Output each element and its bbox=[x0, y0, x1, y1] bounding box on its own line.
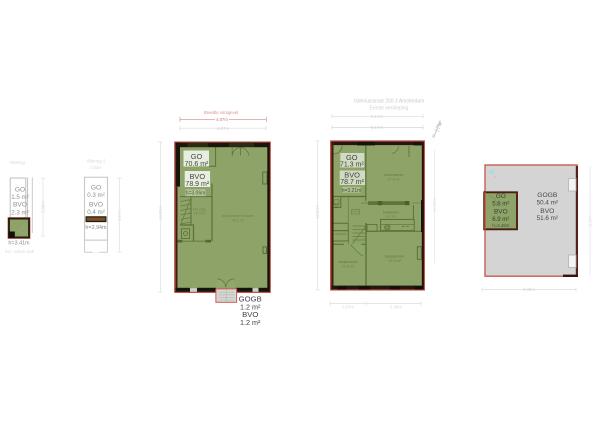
svg-text:incl. schuin dak: incl. schuin dak bbox=[5, 249, 35, 254]
svg-text:BVO: BVO bbox=[344, 170, 360, 179]
svg-text:Breedte voorgevel: Breedte voorgevel bbox=[204, 110, 238, 115]
svg-text:woonkamer keuken: woonkamer keuken bbox=[222, 214, 254, 218]
svg-text:Vliering: Vliering bbox=[9, 160, 25, 165]
svg-text:4.2 m²: 4.2 m² bbox=[386, 215, 397, 219]
svg-text:h=3.41m: h=3.41m bbox=[8, 241, 30, 247]
svg-text:5.45m: 5.45m bbox=[390, 304, 402, 309]
svg-text:h=2.94m: h=2.94m bbox=[85, 225, 107, 231]
svg-text:5.17m: 5.17m bbox=[371, 114, 384, 119]
svg-text:h=3.21m: h=3.21m bbox=[342, 188, 362, 194]
svg-text:3.67m: 3.67m bbox=[117, 209, 122, 221]
svg-text:5.8 m²: 5.8 m² bbox=[492, 202, 509, 208]
svg-text:slaapkamer: slaapkamer bbox=[338, 260, 358, 264]
svg-text:0.3 m²: 0.3 m² bbox=[87, 192, 105, 199]
svg-text:woonkamer: woonkamer bbox=[384, 173, 404, 177]
svg-text:2.96m: 2.96m bbox=[41, 201, 46, 213]
svg-text:h=3.06m: h=3.06m bbox=[186, 191, 206, 197]
svg-text:GO: GO bbox=[191, 152, 203, 161]
svg-text:BVO: BVO bbox=[494, 209, 508, 216]
svg-text:48.1 m²: 48.1 m² bbox=[232, 219, 245, 223]
svg-text:BVO: BVO bbox=[189, 172, 205, 181]
svg-text:GO: GO bbox=[15, 186, 25, 193]
svg-text:9.35m: 9.35m bbox=[523, 287, 536, 292]
svg-text:GOGB: GOGB bbox=[537, 192, 558, 199]
svg-text:slaapkamer: slaapkamer bbox=[385, 255, 405, 259]
svg-text:GO: GO bbox=[346, 153, 358, 162]
svg-text:18.7cm: 18.7cm bbox=[194, 212, 206, 216]
svg-text:11.2m: 11.2m bbox=[588, 216, 593, 228]
svg-text:GO: GO bbox=[496, 193, 506, 200]
svg-text:70.6 m²: 70.6 m² bbox=[185, 161, 209, 168]
svg-text:10.42m: 10.42m bbox=[432, 198, 437, 212]
svg-text:3.67m: 3.67m bbox=[342, 304, 354, 309]
svg-text:h=2.49m: h=2.49m bbox=[492, 223, 510, 228]
svg-text:GO: GO bbox=[91, 184, 101, 191]
svg-text:2.3 m²: 2.3 m² bbox=[11, 209, 29, 216]
svg-text:51.6 m²: 51.6 m² bbox=[537, 215, 558, 222]
svg-text:1.5 m²: 1.5 m² bbox=[11, 194, 29, 201]
svg-text:Vliering 2: Vliering 2 bbox=[86, 159, 106, 164]
svg-text:4.87m: 4.87m bbox=[217, 126, 230, 131]
svg-text:0.4 m²: 0.4 m² bbox=[87, 209, 105, 216]
svg-text:17.9 m²: 17.9 m² bbox=[388, 178, 402, 182]
svg-text:78.9 m²: 78.9 m² bbox=[185, 181, 209, 188]
svg-text:13.87m: 13.87m bbox=[315, 205, 320, 219]
svg-text:Eerste verdieping: Eerste verdieping bbox=[370, 106, 409, 112]
svg-text:BVO: BVO bbox=[13, 202, 27, 209]
svg-text:11.6 m²: 11.6 m² bbox=[342, 265, 355, 269]
svg-text:1.2 m²: 1.2 m² bbox=[240, 318, 261, 327]
svg-text:78.7 m²: 78.7 m² bbox=[340, 179, 364, 186]
svg-text:50.4 m²: 50.4 m² bbox=[537, 200, 558, 207]
svg-text:BVO: BVO bbox=[540, 208, 554, 215]
svg-text:13.87m: 13.87m bbox=[158, 206, 163, 220]
svg-text:5.17m: 5.17m bbox=[371, 125, 384, 130]
svg-text:BVO: BVO bbox=[89, 202, 103, 209]
svg-text:zolder: zolder bbox=[90, 165, 102, 170]
svg-text:4.87m: 4.87m bbox=[216, 117, 228, 122]
svg-text:Valeriusstraat 200 3 Amsterda: Valeriusstraat 200 3 Amsterdam bbox=[354, 99, 425, 105]
svg-text:71.3 m²: 71.3 m² bbox=[340, 162, 364, 169]
svg-text:13.8 m²: 13.8 m² bbox=[388, 259, 402, 263]
